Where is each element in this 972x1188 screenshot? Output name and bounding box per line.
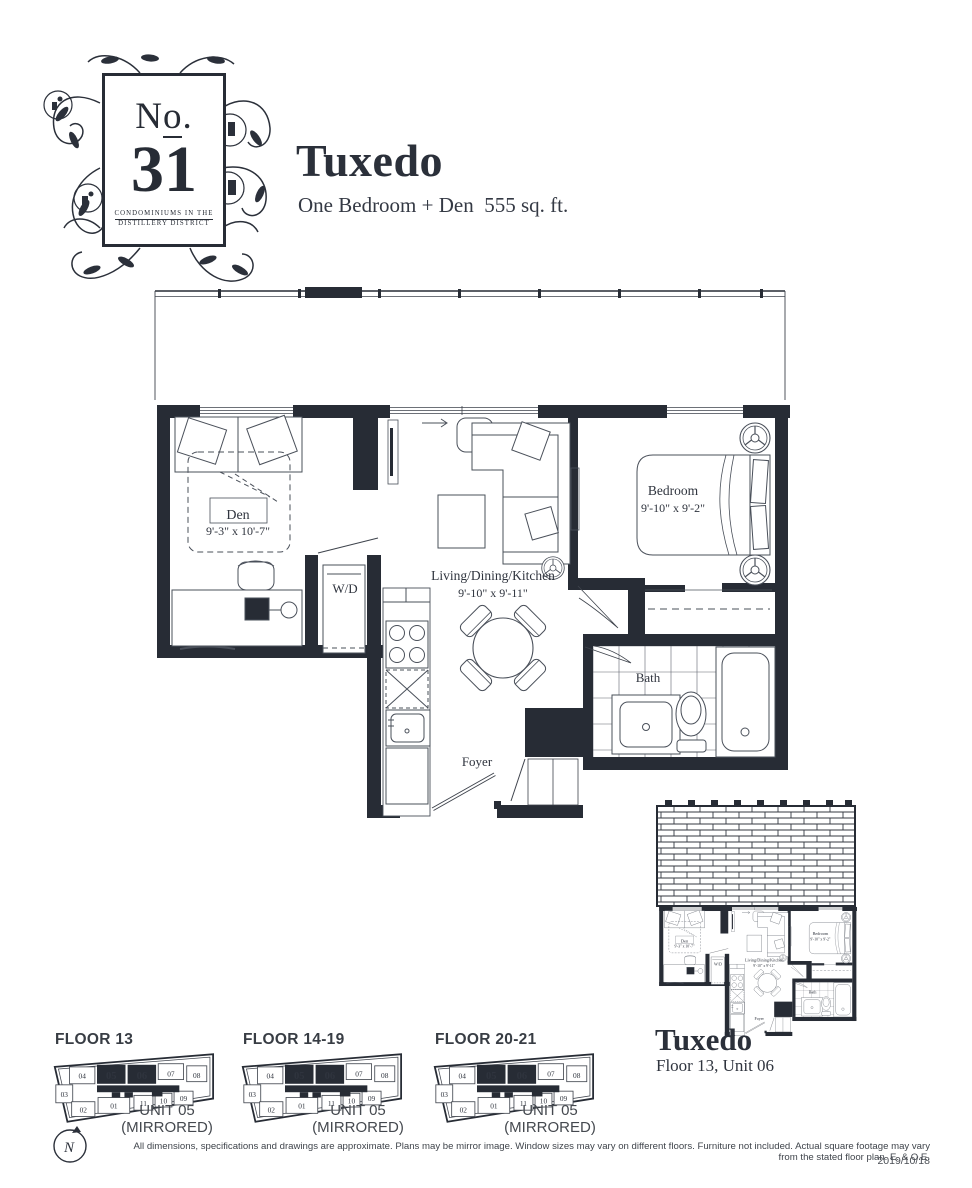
floor-plan-page: Den 9'-3" x 10'-7" W/D Living/Dining/Kit… bbox=[0, 0, 972, 1188]
logo-number: 31 bbox=[105, 140, 223, 201]
logo-tagline-1: CONDOMINIUMS IN THE bbox=[115, 210, 214, 220]
compass-needle bbox=[72, 1126, 81, 1133]
compass-north-label: N bbox=[63, 1140, 75, 1156]
keyplan-label-floor20-21: FLOOR 20-21 bbox=[435, 1031, 537, 1049]
keyplan-unit-floor14-19: UNIT 05(MIRRORED) bbox=[298, 1102, 418, 1136]
mini-floor-plan bbox=[655, 800, 861, 1046]
disclaimer-text: All dimensions, specifications and drawi… bbox=[118, 1141, 930, 1163]
mini-plan-subtitle: Floor 13, Unit 06 bbox=[656, 1056, 774, 1076]
keyplan-label-floor13: FLOOR 13 bbox=[55, 1031, 133, 1049]
mini-plan-title: Tuxedo bbox=[655, 1022, 752, 1058]
terrace-brick bbox=[657, 806, 855, 906]
main-floor-plan bbox=[150, 287, 790, 835]
page-title: Tuxedo bbox=[296, 134, 443, 187]
keyplan-unit-floor13: UNIT 05(MIRRORED) bbox=[107, 1102, 227, 1136]
logo-box: No. 31 CONDOMINIUMS IN THE DISTILLERY DI… bbox=[102, 73, 226, 247]
page-subtitle: One Bedroom + Den 555 sq. ft. bbox=[298, 193, 568, 218]
logo-tagline-2: DISTILLERY DISTRICT bbox=[105, 220, 223, 227]
compass-icon: N bbox=[48, 1122, 94, 1168]
logo-number-prefix: No. bbox=[105, 98, 223, 138]
keyplan-label-floor14-19: FLOOR 14-19 bbox=[243, 1031, 345, 1049]
keyplan-unit-floor20-21: UNIT 05(MIRRORED) bbox=[490, 1102, 610, 1136]
plan-date: 2019/10/18 bbox=[820, 1155, 930, 1167]
